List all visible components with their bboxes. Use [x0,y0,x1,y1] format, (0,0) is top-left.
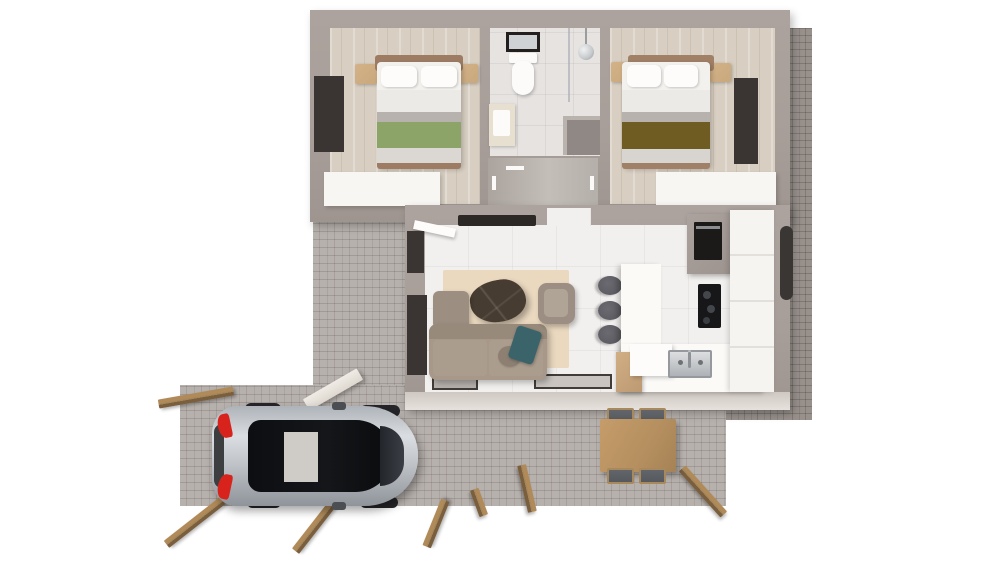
sink-drain [678,360,683,365]
door-handle [590,176,594,190]
burner [707,305,715,313]
armchair-cushion [544,289,568,317]
exterior-wall-unit [780,226,793,300]
storage-niche [563,116,600,155]
pillow [664,65,698,87]
olive-throw [622,122,710,149]
pillow [627,65,661,87]
dining-table [600,419,676,472]
right-side-paving-strip [787,28,812,420]
duvet-gray-band [377,112,461,122]
tall-cabinets [730,210,774,392]
bar-stool [598,301,622,320]
green-throw [377,122,461,148]
pillow [381,66,417,87]
dining-chair [639,468,666,484]
toilet [512,61,534,95]
kitchen-counter-vertical [621,264,661,356]
bed-footboard [622,163,710,169]
duvet-gray-band [622,112,710,122]
hallway-floor [488,158,598,208]
duvet-foot [377,148,461,164]
door-handle [492,176,496,190]
hall-living-passage [547,208,591,226]
bed-footboard [377,163,461,169]
bar-stool [598,325,622,344]
car-mirror [332,502,346,510]
faucet-icon [688,352,691,368]
shower-glass-partition [568,28,570,102]
window-pane [737,81,755,161]
burner [703,291,711,299]
dining-set [598,406,680,486]
window-pane [317,79,341,149]
island-top [630,344,672,376]
bar-stool [598,276,622,295]
window-pane [410,234,421,270]
bedroom-right-window-icon [734,78,758,164]
living-window-icon [407,231,424,273]
car-roof-glass [248,420,392,492]
wood-plank [292,501,336,554]
burner [703,317,710,324]
wood-plank [422,499,449,549]
wardrobe [324,172,440,206]
car [212,404,418,508]
tv-icon [458,215,536,226]
duvet-foot [622,149,710,164]
shower-head-icon [578,44,594,60]
dining-chair [607,468,634,484]
sofa-seat-cushion [433,340,487,376]
car-sunroof-panel [284,432,318,482]
window-pane [410,298,424,372]
oven-handle [696,226,720,229]
living-window-icon [407,295,427,375]
door-handle [506,166,524,170]
nightstand [355,64,377,84]
car-mirror [332,402,346,410]
wardrobe [656,172,776,206]
mirror-icon [506,32,540,52]
bedroom-left-window-icon [314,76,344,152]
driveway-strip-paving [313,222,410,391]
floor-plan-render [0,0,1000,562]
pillow [421,66,457,87]
sink-drain [698,360,703,365]
vanity-sink [493,110,510,136]
